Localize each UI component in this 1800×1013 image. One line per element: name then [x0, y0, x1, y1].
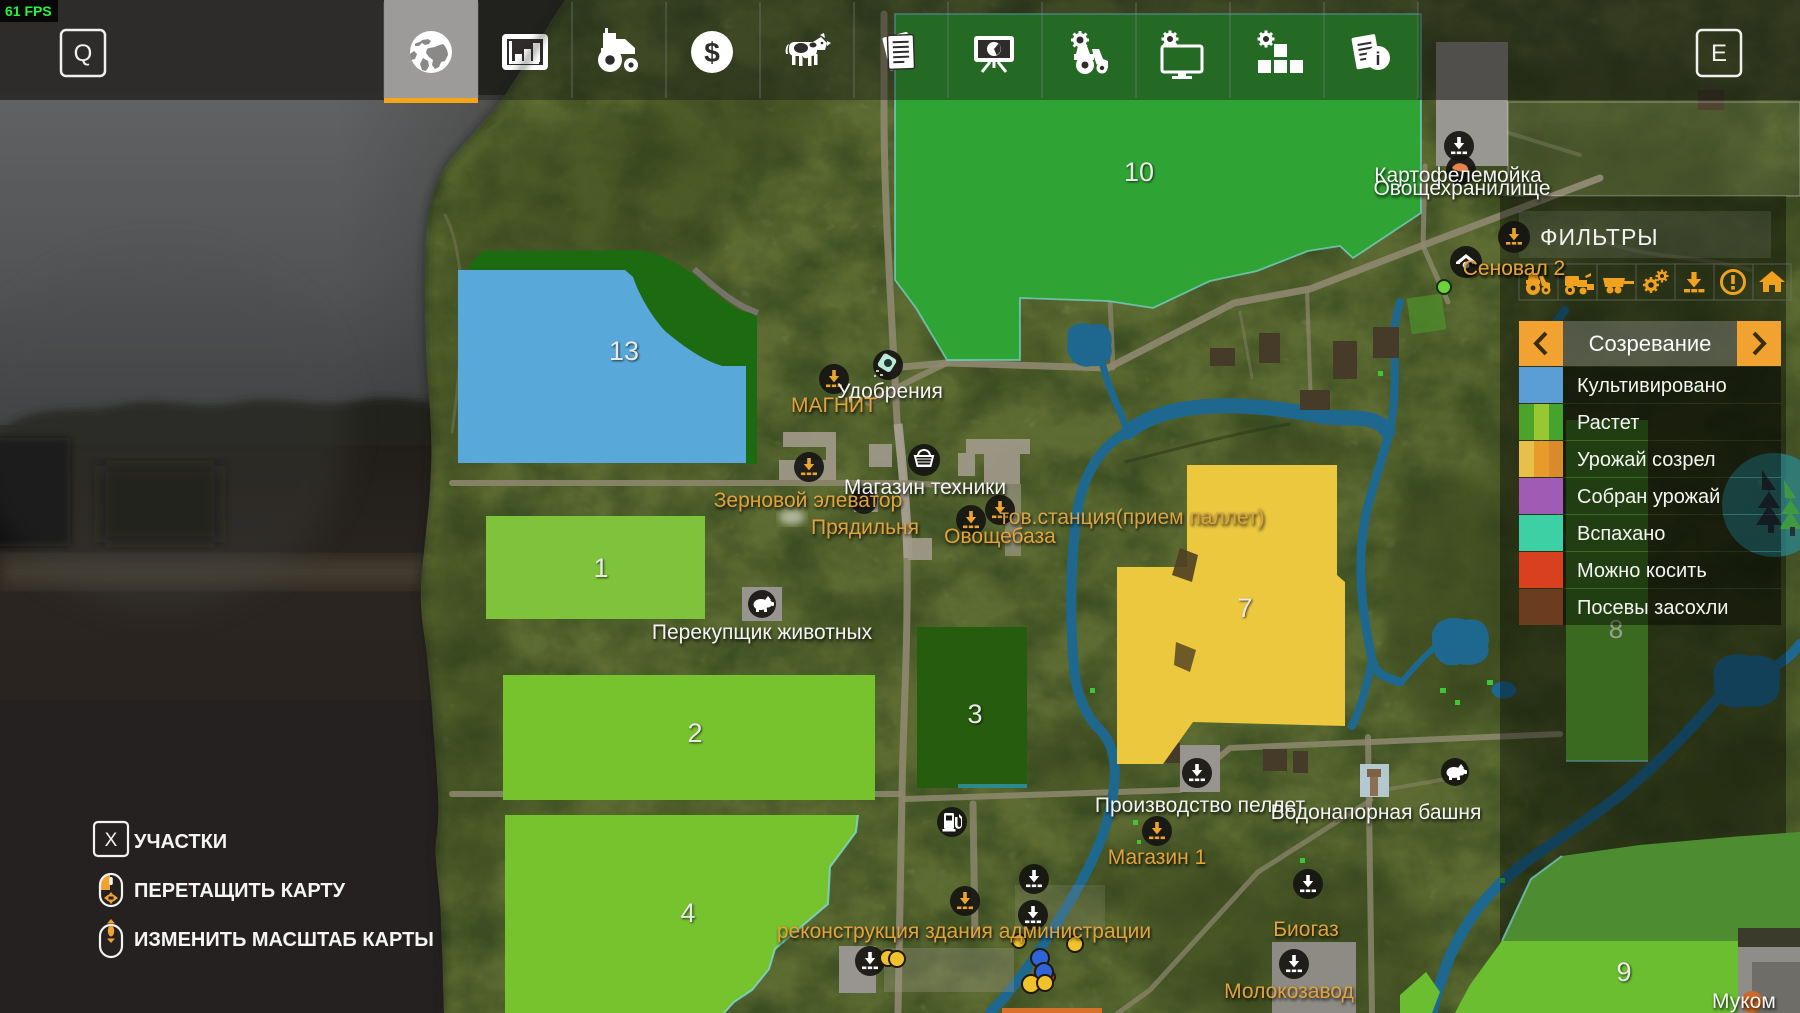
svg-text:Магазин 1: Магазин 1: [1108, 846, 1207, 869]
svg-text:Овощебаза: Овощебаза: [944, 525, 1056, 548]
svg-text:13: 13: [609, 336, 639, 366]
svg-text:Водонапорная башня: Водонапорная башня: [1271, 801, 1482, 824]
svg-text:Вспахано: Вспахано: [1577, 523, 1665, 545]
svg-text:Молокозавод: Молокозавод: [1224, 980, 1354, 1003]
svg-text:Перекупщик животных: Перекупщик животных: [652, 621, 873, 644]
svg-text:Зерновой элеватор: Зерновой элеватор: [714, 489, 903, 512]
svg-text:X: X: [105, 830, 118, 851]
svg-text:61 FPS: 61 FPS: [5, 3, 52, 19]
svg-text:9: 9: [1616, 957, 1631, 987]
svg-text:7: 7: [1237, 593, 1252, 623]
svg-text:E: E: [1711, 40, 1727, 67]
svg-text:Муком: Муком: [1712, 990, 1776, 1013]
svg-text:10: 10: [1124, 157, 1154, 187]
svg-text:3: 3: [967, 699, 982, 729]
svg-text:Овощехранилище: Овощехранилище: [1373, 177, 1550, 200]
svg-text:УЧАСТКИ: УЧАСТКИ: [134, 831, 227, 853]
svg-text:i: i: [1375, 49, 1380, 69]
svg-text:4: 4: [680, 898, 695, 928]
svg-text:Сеновал 2: Сеновал 2: [1463, 257, 1566, 280]
svg-text:Прядильня: Прядильня: [811, 516, 919, 539]
svg-text:МАГНИТ: МАГНИТ: [791, 394, 877, 417]
svg-text:$: $: [704, 37, 720, 68]
svg-text:Урожай созрел: Урожай созрел: [1577, 449, 1716, 471]
svg-text:ИЗМЕНИТЬ МАСШТАБ КАРТЫ: ИЗМЕНИТЬ МАСШТАБ КАРТЫ: [134, 929, 434, 951]
svg-text:2: 2: [687, 718, 702, 748]
svg-text:Созревание: Созревание: [1589, 331, 1712, 356]
svg-text:реконструкция здания администр: реконструкция здания администрации: [777, 920, 1151, 943]
svg-text:Биогаз: Биогаз: [1273, 918, 1338, 941]
svg-text:Собран урожай: Собран урожай: [1577, 486, 1720, 508]
svg-text:Q: Q: [74, 40, 93, 67]
svg-text:ФИЛЬТРЫ: ФИЛЬТРЫ: [1540, 224, 1659, 250]
svg-text:Можно косить: Можно косить: [1577, 560, 1707, 582]
svg-text:Растет: Растет: [1577, 412, 1639, 434]
svg-text:Посевы засохли: Посевы засохли: [1577, 597, 1728, 619]
svg-text:ПЕРЕТАЩИТЬ КАРТУ: ПЕРЕТАЩИТЬ КАРТУ: [134, 880, 346, 902]
svg-text:1: 1: [593, 553, 608, 583]
svg-text:Культивировано: Культивировано: [1577, 375, 1727, 397]
